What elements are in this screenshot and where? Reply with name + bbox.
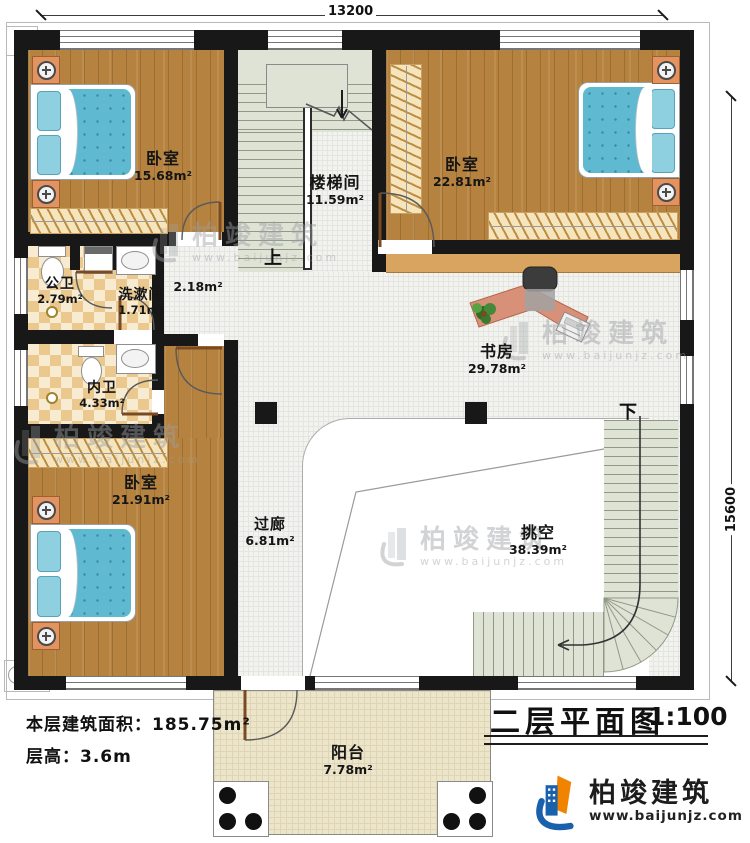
room-label-bedroom-tl: 卧室 15.68m² (115, 150, 211, 184)
room-area: 2.79m² (28, 293, 92, 307)
room-area: 21.91m² (95, 493, 187, 508)
blanket-fold (635, 87, 652, 173)
wall-bedroombl-top (164, 334, 198, 346)
room-area: 2.18m² (168, 280, 228, 295)
stair-up-label: 上 (264, 244, 282, 270)
dimension-line-right (731, 96, 732, 682)
room-area: 7.78m² (300, 763, 396, 778)
toilet-tank (78, 346, 104, 357)
washing-machine (84, 246, 113, 274)
wall-stair-bedroomtr (372, 30, 386, 272)
nightstand (652, 178, 680, 206)
floor-area-value: 185.75m² (152, 715, 251, 735)
room-label-bedroom-bl: 卧室 21.91m² (95, 474, 187, 508)
lamp-icon (37, 185, 56, 204)
stair-upper-flight-outline (266, 64, 348, 108)
column-void-left (255, 402, 277, 424)
brand-logo: 柏竣建筑 www.baijunjz.com (532, 772, 743, 832)
column-dot (469, 813, 486, 830)
floor-area-text: 本层建筑面积：185.75m² (26, 710, 251, 735)
brand-url: www.baijunjz.com (589, 808, 743, 824)
room-label-balcony: 阳台 7.78m² (300, 744, 396, 778)
stair-run-horizontal (473, 612, 604, 676)
wardrobe-bedroom-tr-bottom (488, 212, 678, 240)
room-label-study: 书房 29.78m² (453, 343, 541, 377)
floor-height-text: 层高：3.6m (26, 742, 132, 767)
room-name: 阳台 (300, 744, 396, 763)
wall-bedroomtl-stair (224, 30, 238, 246)
room-label-void: 挑空 38.39m² (494, 524, 582, 558)
window-right-study-a (680, 270, 694, 320)
room-area: 15.68m² (115, 169, 211, 184)
nightstand (652, 56, 680, 84)
washer-lid (85, 247, 112, 254)
lamp-icon (37, 501, 56, 520)
window-top-bedroomtl (60, 30, 194, 50)
floor-height-value: 3.6m (80, 747, 132, 767)
room-area: 1.71m² (106, 304, 176, 318)
room-name: 书房 (453, 343, 541, 362)
room-area: 38.39m² (494, 543, 582, 558)
door-opening-bedroom-bl (198, 334, 224, 346)
wall-below-innerbath (14, 424, 164, 438)
column-void-right (465, 402, 487, 424)
room-name: 卧室 (95, 474, 187, 493)
door-opening-innerbath (152, 390, 164, 414)
room-name: 公卫 (28, 276, 92, 293)
column-dot (469, 787, 486, 804)
lamp-icon (657, 183, 676, 202)
brand-name: 柏竣建筑 (589, 780, 743, 808)
room-area: 6.81m² (234, 534, 306, 549)
wall-bedroombl-right (224, 340, 238, 676)
balcony-column-right (437, 781, 493, 837)
floor-plan: 柏竣建筑www.baijunjz.com 柏竣建筑www.baijunjz.co… (0, 0, 750, 843)
stair-down-label: 下 (619, 398, 637, 424)
column-dot (219, 813, 236, 830)
room-area: 11.59m² (293, 193, 377, 208)
room-name: 挑空 (494, 524, 582, 543)
room-area: 22.81m² (414, 175, 510, 190)
room-name: 洗漱间 (106, 287, 176, 304)
brand-logo-icon (532, 772, 580, 832)
title-underline (484, 735, 708, 745)
window-bottom-bedroombl (66, 676, 186, 690)
floor-drain (46, 392, 58, 404)
wardrobe-bedroom-tr-side (390, 64, 422, 214)
pillow (651, 133, 675, 173)
room-area: 29.78m² (453, 362, 541, 377)
chair-mat (525, 289, 555, 311)
office-chair (523, 267, 557, 291)
room-name: 楼梯间 (293, 174, 377, 193)
room-label-public-bath: 公卫 2.79m² (28, 276, 92, 306)
door-opening-bedroom-tr (378, 240, 432, 254)
door-opening-washroom (114, 330, 152, 344)
bed-bedroom-tr (578, 82, 680, 178)
pillow (37, 135, 61, 175)
column-dot (245, 813, 262, 830)
balcony-column-left (213, 781, 269, 837)
dimension-height: 15600 (724, 484, 739, 535)
window-bottom-balcony-wall (315, 676, 419, 690)
floor-drain (46, 306, 58, 318)
lamp-icon (657, 61, 676, 80)
window-left-publicbath (14, 258, 28, 314)
washroom-sink (121, 251, 149, 270)
bed-bedroom-bl (30, 524, 136, 622)
lamp-icon (37, 61, 56, 80)
window-top-stairwell (268, 30, 342, 50)
column-dot (219, 787, 236, 804)
lamp-icon (37, 627, 56, 646)
nightstand (32, 180, 60, 208)
drawing-scale: 1:100 (648, 702, 728, 731)
window-right-study-b (680, 356, 694, 404)
room-name: 卧室 (115, 150, 211, 169)
floor-area-label: 本层建筑面积： (26, 715, 152, 735)
column-dot (443, 813, 460, 830)
floor-height-label: 层高： (26, 747, 80, 767)
room-label-bedroom-tr: 卧室 22.81m² (414, 156, 510, 190)
door-opening-bedroom-tl (176, 232, 222, 246)
pillow (651, 89, 675, 129)
pillow (37, 531, 61, 572)
pillow (37, 576, 61, 617)
room-label-stairwell: 楼梯间 11.59m² (293, 174, 377, 208)
room-area: 4.33m² (70, 397, 134, 411)
pillow (37, 91, 61, 131)
window-top-bedroomtr (500, 30, 640, 50)
desk-group (455, 265, 605, 355)
door-opening-balcony (241, 676, 305, 690)
dimension-width: 13200 (325, 4, 376, 19)
room-name: 过廊 (234, 516, 306, 534)
window-bottom-stair (518, 676, 636, 690)
innerbath-sink (121, 349, 149, 368)
window-left-innerbath (14, 350, 28, 406)
wall-bath-stub (70, 243, 80, 270)
toilet-tank (38, 246, 66, 257)
room-label-washroom: 洗漱间 1.71m² (106, 287, 176, 317)
nightstand (32, 622, 60, 650)
room-label-inner-bath: 内卫 4.33m² (70, 380, 134, 410)
stair-run-vertical (604, 420, 678, 598)
room-label-hall: 2.18m² (168, 280, 228, 295)
room-name: 内卫 (70, 380, 134, 397)
room-label-corridor: 过廊 6.81m² (234, 516, 306, 548)
nightstand (32, 56, 60, 84)
nightstand (32, 496, 60, 524)
room-name: 卧室 (414, 156, 510, 175)
wardrobe-bedroom-bl (28, 438, 168, 468)
wardrobe-bedroom-tl (30, 208, 168, 234)
floor-bedroom-bl-ext (164, 346, 224, 438)
